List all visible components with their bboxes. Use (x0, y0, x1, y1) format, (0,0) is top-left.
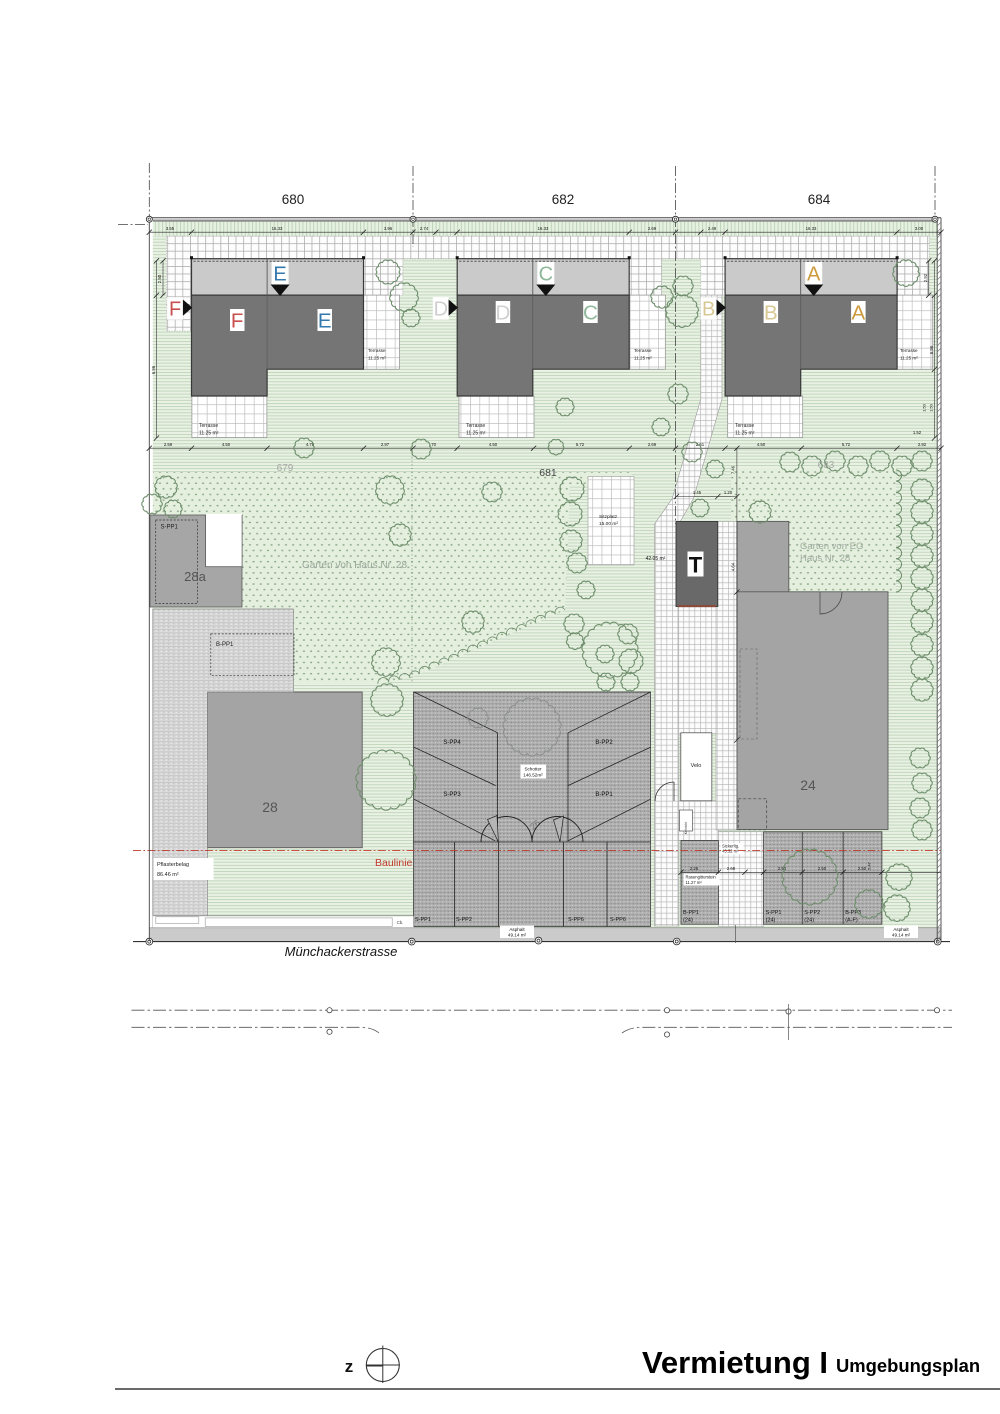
svg-text:(24): (24) (804, 918, 814, 924)
svg-text:B-PP1: B-PP1 (683, 910, 699, 916)
svg-text:Terrasse: Terrasse (199, 423, 218, 429)
svg-text:S-PP2: S-PP2 (804, 910, 820, 916)
svg-text:B-PP1: B-PP1 (595, 792, 613, 798)
svg-text:681: 681 (539, 467, 557, 479)
svg-text:4.50: 4.50 (757, 442, 766, 447)
svg-text:2.92: 2.92 (923, 273, 928, 282)
svg-text:2.26: 2.26 (690, 866, 699, 871)
svg-text:F: F (231, 310, 244, 333)
svg-text:2.50: 2.50 (818, 866, 827, 871)
svg-text:11.25 m²: 11.25 m² (466, 431, 486, 437)
svg-text:Terrasse: Terrasse (368, 348, 386, 353)
svg-text:28a: 28a (184, 569, 206, 584)
svg-text:3.00: 3.00 (915, 226, 924, 231)
svg-text:Garten von Haus Nr. 28: Garten von Haus Nr. 28 (302, 560, 407, 571)
svg-text:2.59: 2.59 (164, 442, 173, 447)
svg-text:C: C (539, 264, 553, 286)
svg-text:E: E (273, 264, 286, 286)
svg-text:Sitzplatz: Sitzplatz (599, 514, 618, 520)
svg-text:2.50: 2.50 (157, 274, 162, 283)
svg-text:S-PP4: S-PP4 (443, 740, 461, 746)
svg-text:S-PP3: S-PP3 (443, 792, 461, 798)
svg-text:42.05 m²: 42.05 m² (646, 556, 666, 562)
svg-text:3.55: 3.55 (166, 226, 175, 231)
svg-text:Terrasse: Terrasse (466, 423, 485, 429)
svg-text:6.96: 6.96 (151, 365, 156, 374)
svg-text:Münchackerstrasse: Münchackerstrasse (285, 944, 398, 959)
svg-text:28: 28 (262, 799, 278, 815)
svg-text:2.49: 2.49 (708, 226, 717, 231)
svg-text:16.33: 16.33 (272, 226, 283, 231)
svg-text:Rasengitterstein: Rasengitterstein (686, 875, 717, 880)
svg-text:2.50: 2.50 (858, 866, 867, 871)
svg-text:B: B (764, 302, 778, 325)
svg-text:S-PP6: S-PP6 (568, 917, 584, 923)
svg-text:2.92: 2.92 (918, 442, 927, 447)
svg-text:3.96: 3.96 (384, 226, 393, 231)
svg-text:2.97: 2.97 (381, 442, 390, 447)
svg-text:B-PP2: B-PP2 (595, 740, 613, 746)
svg-text:2.68: 2.68 (727, 866, 736, 871)
svg-text:Asphalt: Asphalt (509, 927, 525, 932)
svg-text:1.52: 1.52 (913, 430, 922, 435)
svg-text:2.74: 2.74 (420, 226, 429, 231)
svg-text:5.47: 5.47 (867, 861, 872, 870)
svg-text:S-PP1: S-PP1 (415, 917, 431, 923)
svg-text:B: B (702, 299, 715, 321)
svg-text:Terrasse: Terrasse (735, 423, 754, 429)
svg-text:2.69: 2.69 (648, 442, 657, 447)
svg-text:4.50: 4.50 (222, 442, 231, 447)
svg-text:Asphalt: Asphalt (893, 927, 909, 932)
svg-text:4.64: 4.64 (731, 562, 736, 571)
svg-text:15.00 m²: 15.00 m² (599, 521, 618, 527)
svg-text:Kehricht: Kehricht (684, 822, 688, 834)
svg-text:S-PP1: S-PP1 (766, 910, 782, 916)
svg-text:Schotter: Schotter (524, 767, 542, 772)
svg-text:1.50: 1.50 (922, 403, 927, 412)
svg-text:Baulinie: Baulinie (375, 857, 413, 869)
svg-text:(A-F): (A-F) (845, 918, 858, 924)
svg-text:11.25 m²: 11.25 m² (368, 356, 386, 361)
svg-text:2.69: 2.69 (648, 226, 657, 231)
svg-text:F: F (169, 299, 181, 321)
svg-text:6.96: 6.96 (929, 345, 934, 354)
svg-text:146.52m²: 146.52m² (523, 773, 543, 778)
svg-text:S-PP6: S-PP6 (610, 917, 626, 923)
svg-text:Pflasterbelag: Pflasterbelag (157, 862, 189, 868)
svg-text:679: 679 (277, 463, 294, 474)
svg-text:A: A (807, 264, 821, 286)
svg-text:B-PP1: B-PP1 (216, 642, 234, 648)
svg-text:49.14 m²: 49.14 m² (892, 933, 911, 938)
svg-text:11.25 m²: 11.25 m² (900, 356, 918, 361)
svg-text:86.46 m²: 86.46 m² (157, 872, 179, 878)
svg-text:16.33: 16.33 (806, 226, 817, 231)
svg-text:Garten von EG: Garten von EG (800, 541, 863, 552)
svg-text:24: 24 (800, 777, 816, 793)
svg-text:Haus Nr. 28: Haus Nr. 28 (800, 553, 850, 564)
svg-text:(24): (24) (683, 918, 693, 924)
svg-text:Terrasse: Terrasse (900, 348, 918, 353)
svg-text:5.72: 5.72 (576, 442, 585, 447)
svg-text:E: E (318, 310, 332, 333)
svg-text:5.72: 5.72 (842, 442, 851, 447)
svg-text:11.25 m²: 11.25 m² (634, 356, 652, 361)
svg-text:1.20: 1.20 (724, 490, 733, 495)
svg-text:1.45: 1.45 (693, 490, 702, 495)
svg-text:7.46: 7.46 (731, 465, 736, 474)
svg-text:.70: .70 (430, 442, 437, 447)
svg-text:680: 680 (282, 192, 305, 207)
svg-text:Cb.: Cb. (397, 920, 404, 925)
svg-text:Vermietung I: Vermietung I (642, 1345, 828, 1380)
svg-text:D: D (495, 302, 510, 325)
svg-text:4.50: 4.50 (489, 442, 498, 447)
svg-text:684: 684 (808, 192, 831, 207)
svg-text:D: D (434, 299, 448, 321)
svg-text:z: z (345, 1357, 354, 1376)
svg-text:16.33: 16.33 (538, 226, 549, 231)
svg-text:S-PP2: S-PP2 (456, 917, 472, 923)
svg-text:Velo: Velo (691, 763, 702, 769)
svg-text:49.14 m²: 49.14 m² (508, 933, 527, 938)
svg-text:682: 682 (552, 192, 575, 207)
svg-text:S-PP1: S-PP1 (161, 525, 179, 531)
svg-text:1.50: 1.50 (929, 403, 934, 412)
svg-text:11.25 m²: 11.25 m² (199, 431, 219, 437)
svg-text:C: C (583, 302, 598, 325)
svg-text:Umgebungsplan: Umgebungsplan (836, 1355, 980, 1376)
svg-text:11.27 m²: 11.27 m² (686, 880, 703, 885)
svg-text:2.50: 2.50 (778, 866, 787, 871)
svg-text:11.25 m²: 11.25 m² (735, 431, 755, 437)
svg-text:T: T (689, 553, 703, 578)
svg-text:43.52 m²: 43.52 m² (722, 849, 739, 854)
svg-text:A: A (851, 302, 865, 325)
svg-text:(24): (24) (766, 918, 776, 924)
svg-text:Terrasse: Terrasse (634, 348, 652, 353)
